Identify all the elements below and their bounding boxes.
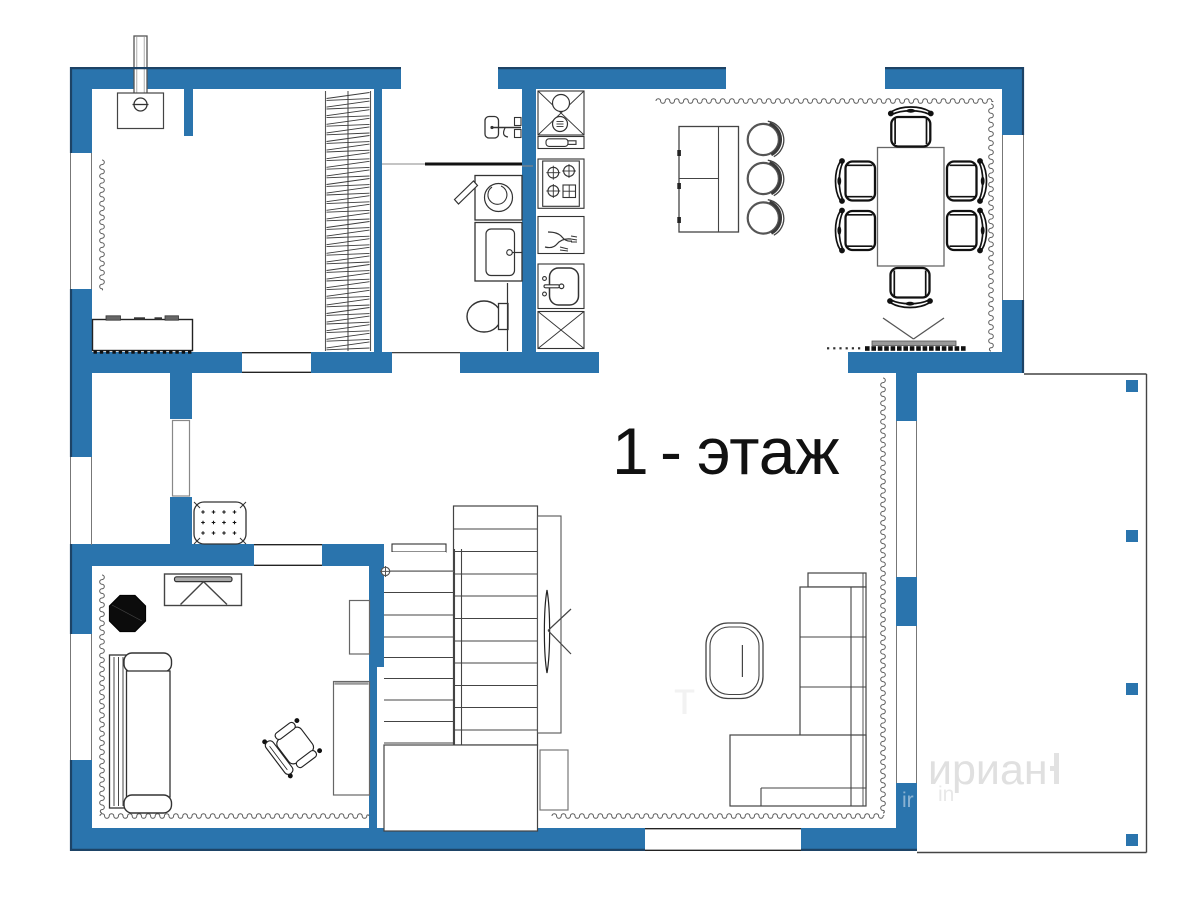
svg-text:1-этаж: 1-этаж — [612, 414, 840, 488]
svg-text:т: т — [674, 672, 695, 724]
svg-text:ir: ir — [902, 789, 914, 812]
svg-text:in: in — [938, 783, 954, 806]
